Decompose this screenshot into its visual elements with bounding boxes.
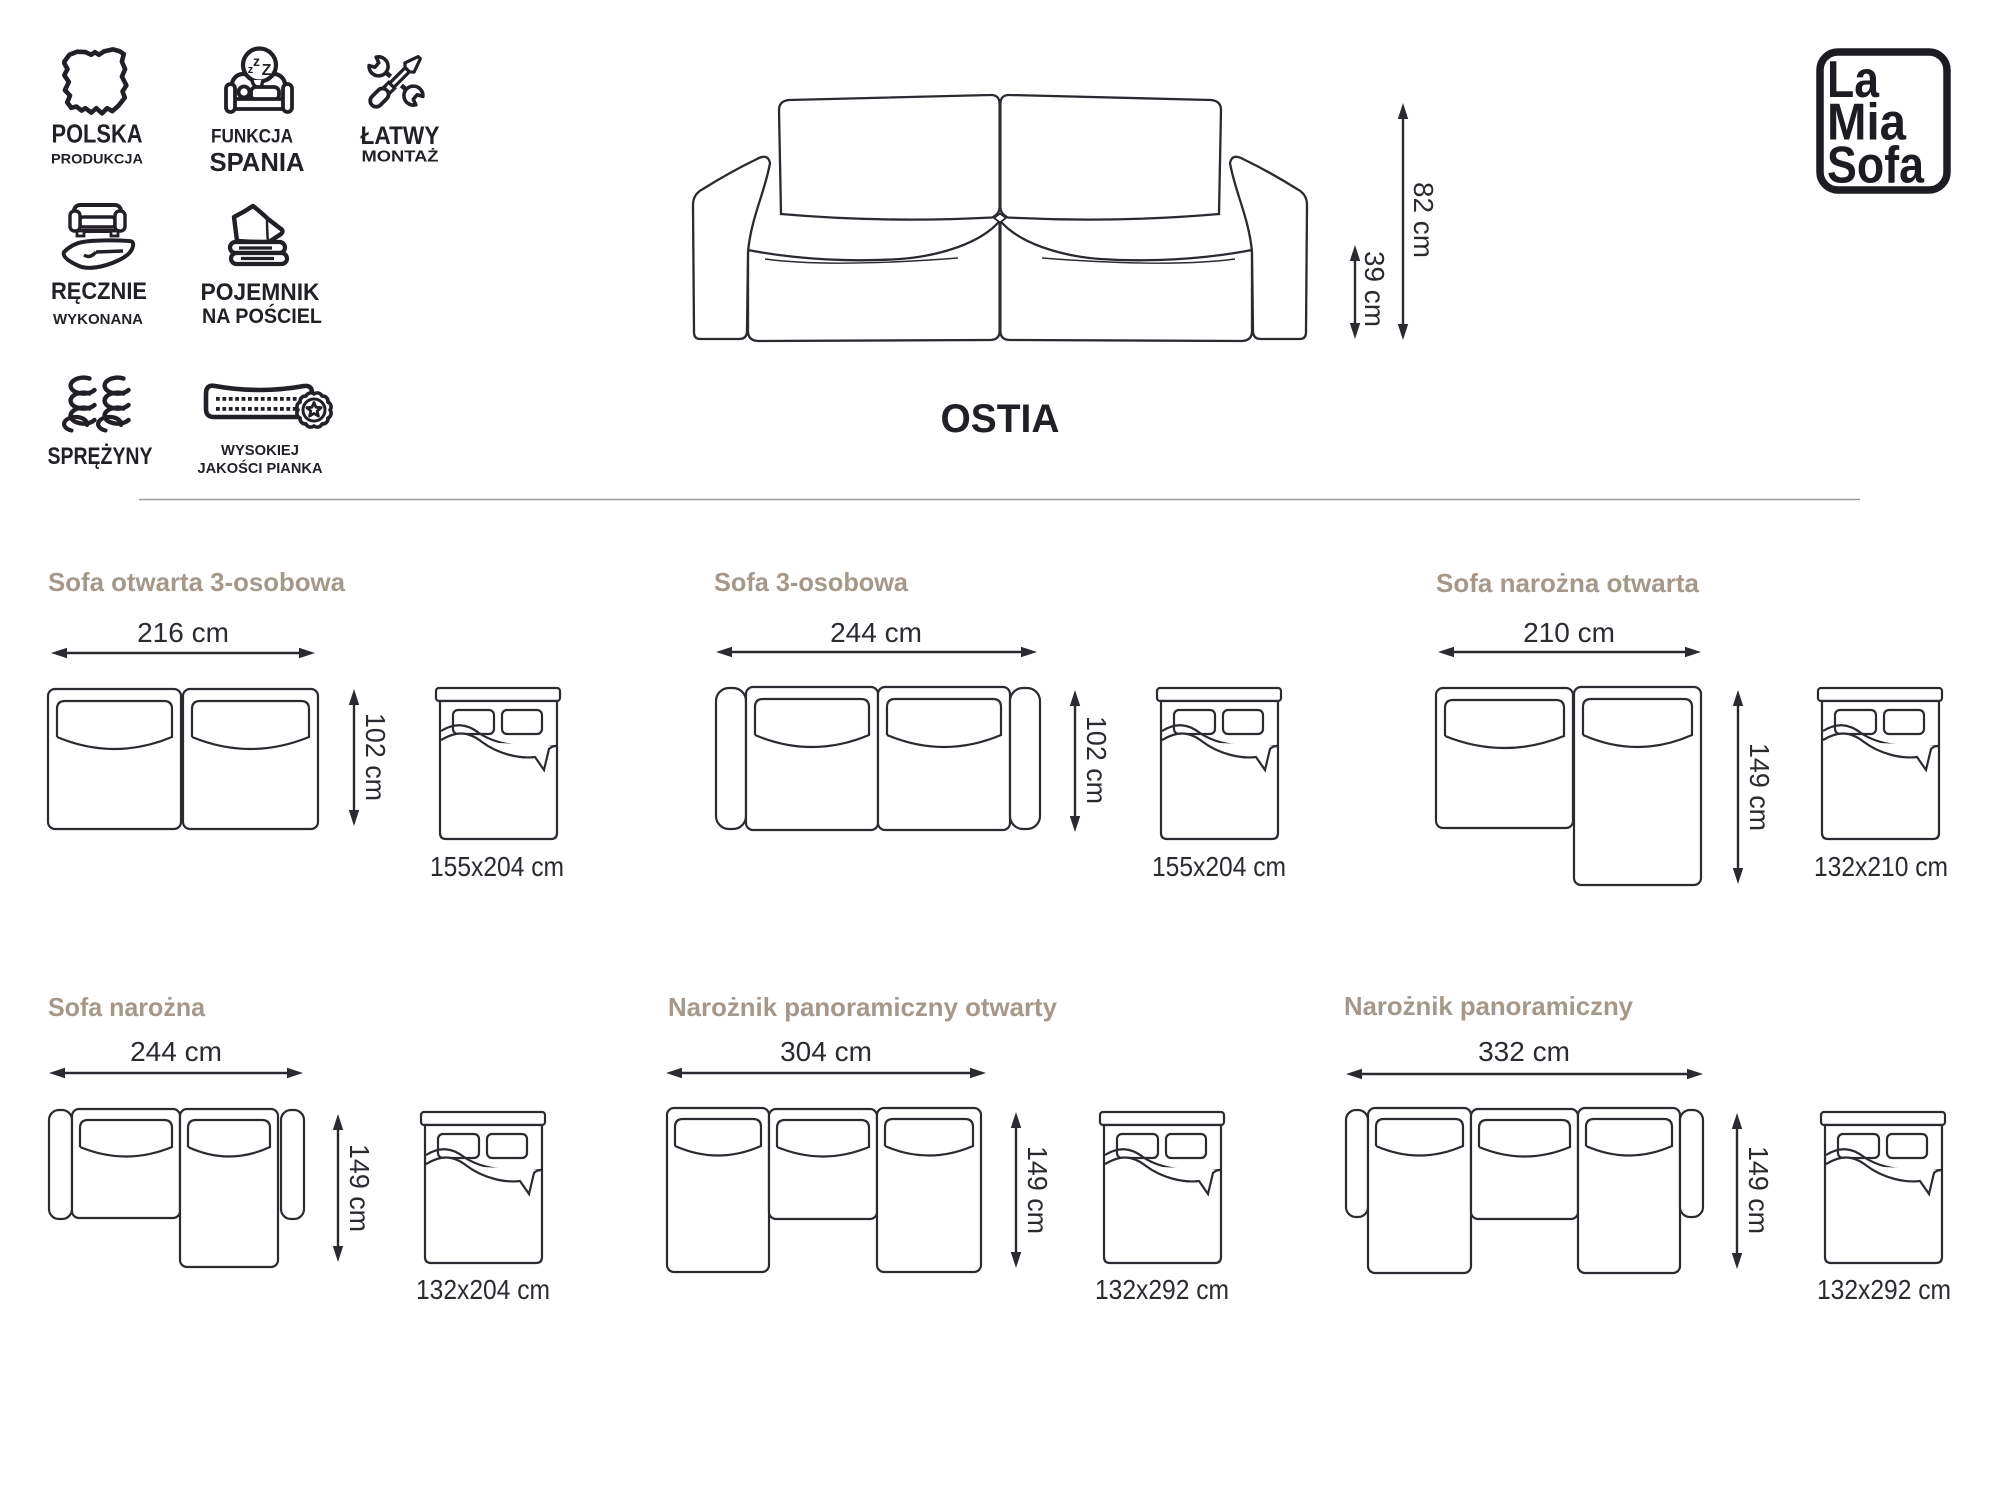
svg-text:OSTIA: OSTIA: [941, 397, 1060, 441]
svg-text:304 cm: 304 cm: [780, 1036, 872, 1067]
svg-text:z: z: [248, 64, 254, 76]
svg-text:NA POŚCIEL: NA POŚCIEL: [202, 304, 322, 328]
svg-text:155x204 cm: 155x204 cm: [1152, 851, 1286, 882]
svg-text:PRODUKCJA: PRODUKCJA: [51, 151, 143, 167]
svg-text:216 cm: 216 cm: [137, 617, 229, 648]
svg-text:39 cm: 39 cm: [1359, 251, 1390, 327]
svg-text:82 cm: 82 cm: [1408, 182, 1439, 258]
svg-text:Sofa narożna otwarta: Sofa narożna otwarta: [1436, 568, 1700, 598]
svg-text:132x292 cm: 132x292 cm: [1095, 1274, 1229, 1305]
svg-text:332 cm: 332 cm: [1478, 1036, 1570, 1067]
svg-text:POLSKA: POLSKA: [52, 119, 143, 149]
svg-text:Sofa 3-osobowa: Sofa 3-osobowa: [714, 567, 909, 597]
svg-text:SPANIA: SPANIA: [210, 147, 305, 177]
svg-text:132x210 cm: 132x210 cm: [1814, 851, 1948, 882]
svg-text:102 cm: 102 cm: [360, 713, 391, 801]
svg-text:Sofa narożna: Sofa narożna: [48, 992, 206, 1022]
svg-text:210 cm: 210 cm: [1523, 617, 1615, 648]
svg-text:POJEMNIK: POJEMNIK: [201, 279, 321, 306]
svg-text:132x204 cm: 132x204 cm: [416, 1274, 550, 1305]
svg-text:244 cm: 244 cm: [130, 1036, 222, 1067]
svg-text:SPRĘŻYNY: SPRĘŻYNY: [48, 443, 153, 470]
svg-text:Sofa otwarta 3-osobowa: Sofa otwarta 3-osobowa: [48, 567, 346, 597]
svg-text:FUNKCJA: FUNKCJA: [211, 127, 293, 148]
svg-text:244 cm: 244 cm: [830, 617, 922, 648]
svg-text:149 cm: 149 cm: [1744, 743, 1775, 831]
svg-text:132x292 cm: 132x292 cm: [1817, 1274, 1951, 1305]
svg-text:Sofa: Sofa: [1827, 137, 1925, 195]
svg-text:149 cm: 149 cm: [1022, 1146, 1053, 1234]
svg-text:149 cm: 149 cm: [1743, 1146, 1774, 1234]
svg-text:102 cm: 102 cm: [1081, 716, 1112, 804]
svg-text:Narożnik panoramiczny: Narożnik panoramiczny: [1344, 991, 1634, 1021]
svg-text:WYSOKIEJ: WYSOKIEJ: [221, 442, 299, 459]
svg-text:ŁATWY: ŁATWY: [361, 122, 440, 150]
svg-text:Z: Z: [262, 62, 272, 79]
svg-text:z: z: [253, 53, 260, 69]
svg-text:Narożnik panoramiczny otwarty: Narożnik panoramiczny otwarty: [668, 992, 1058, 1022]
svg-text:155x204 cm: 155x204 cm: [430, 851, 564, 882]
svg-text:WYKONANA: WYKONANA: [53, 311, 143, 328]
svg-text:MONTAŻ: MONTAŻ: [362, 148, 439, 166]
svg-text:JAKOŚCI PIANKA: JAKOŚCI PIANKA: [198, 459, 323, 477]
svg-text:149 cm: 149 cm: [344, 1144, 375, 1232]
svg-text:RĘCZNIE: RĘCZNIE: [51, 278, 147, 305]
